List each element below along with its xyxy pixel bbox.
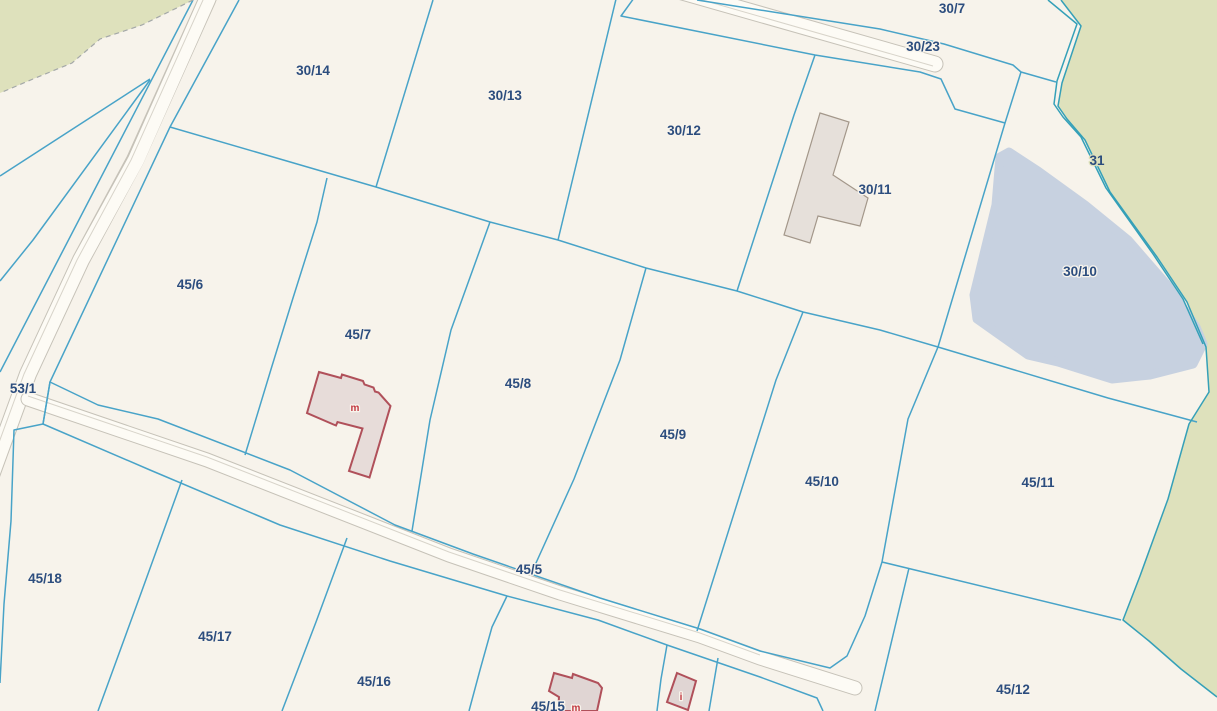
svg-text:45/8: 45/8: [505, 376, 532, 391]
svg-text:30/14: 30/14: [296, 63, 330, 78]
svg-text:45/18: 45/18: [28, 571, 62, 586]
svg-text:45/12: 45/12: [996, 682, 1030, 697]
svg-text:45/10: 45/10: [805, 474, 839, 489]
svg-text:30/13: 30/13: [488, 88, 522, 103]
svg-text:45/7: 45/7: [345, 327, 371, 342]
svg-text:31: 31: [1089, 153, 1105, 168]
svg-text:m: m: [572, 703, 581, 711]
svg-text:45/6: 45/6: [177, 277, 204, 292]
svg-text:30/11: 30/11: [858, 182, 892, 197]
svg-text:45/17: 45/17: [198, 629, 232, 644]
svg-text:45/5: 45/5: [516, 562, 543, 577]
svg-text:45/15: 45/15: [531, 699, 565, 711]
svg-text:30/7: 30/7: [939, 1, 965, 16]
svg-text:45/11: 45/11: [1021, 475, 1055, 490]
svg-text:m: m: [351, 403, 360, 414]
svg-text:45/9: 45/9: [660, 427, 686, 442]
svg-text:30/12: 30/12: [667, 123, 701, 138]
svg-text:i: i: [680, 692, 683, 703]
svg-text:30/23: 30/23: [906, 39, 940, 54]
svg-text:45/16: 45/16: [357, 674, 391, 689]
svg-text:53/1: 53/1: [10, 381, 37, 396]
svg-text:30/10: 30/10: [1063, 264, 1097, 279]
